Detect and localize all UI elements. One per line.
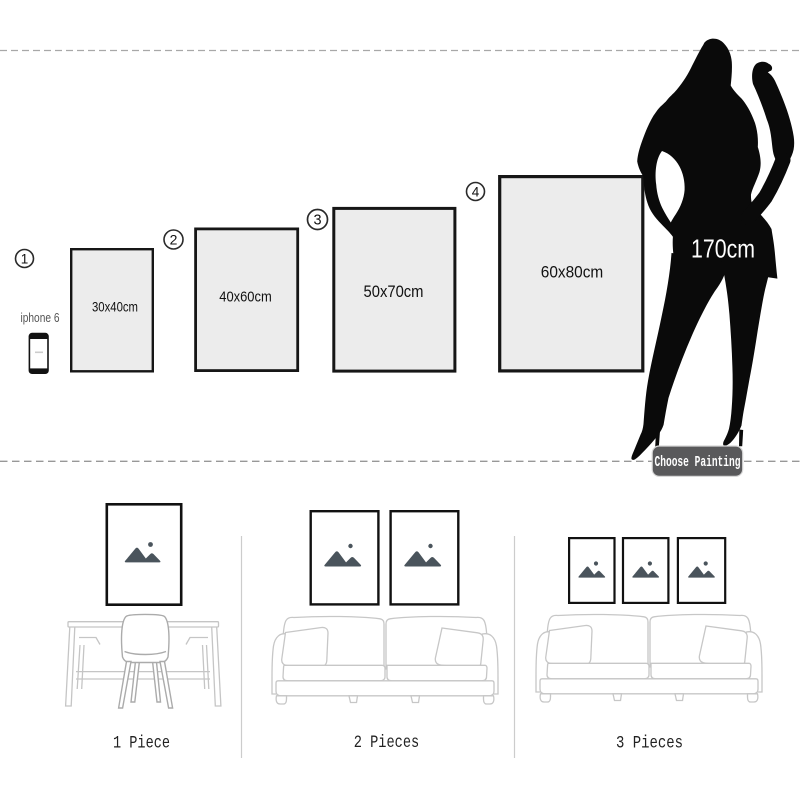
- svg-text:2: 2: [170, 232, 178, 248]
- svg-text:170cm: 170cm: [691, 234, 755, 264]
- svg-text:3: 3: [313, 213, 321, 229]
- svg-text:60x80cm: 60x80cm: [541, 263, 604, 282]
- svg-text:40x60cm: 40x60cm: [219, 289, 272, 306]
- svg-text:3 Pieces: 3 Pieces: [616, 734, 683, 754]
- svg-text:iphone 6: iphone 6: [21, 311, 60, 325]
- svg-text:4: 4: [472, 184, 480, 199]
- svg-text:30x40cm: 30x40cm: [92, 299, 138, 315]
- svg-text:Choose Painting: Choose Painting: [655, 455, 741, 471]
- svg-text:50x70cm: 50x70cm: [364, 283, 424, 301]
- svg-text:2 Pieces: 2 Pieces: [354, 733, 420, 753]
- svg-text:1 Piece: 1 Piece: [113, 734, 170, 754]
- svg-text:1: 1: [21, 251, 29, 266]
